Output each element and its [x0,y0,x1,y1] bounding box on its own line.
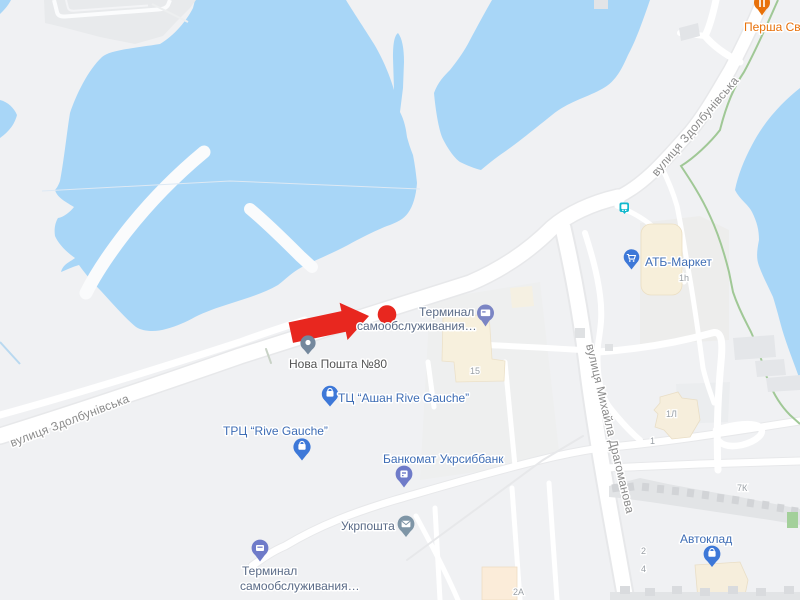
svg-text:самообслуживания…: самообслуживания… [357,319,477,333]
svg-text:1Л: 1Л [666,409,677,419]
svg-text:1h: 1h [679,273,689,283]
svg-text:1: 1 [650,436,655,446]
svg-text:ТЦ “Ашан Rive Gauche”: ТЦ “Ашан Rive Gauche” [338,391,469,405]
svg-text:2А: 2А [513,587,524,597]
svg-text:Терминал: Терминал [419,305,474,319]
svg-text:Нова Пошта №80: Нова Пошта №80 [289,357,387,371]
svg-text:ТРЦ “Rive Gauche”: ТРЦ “Rive Gauche” [223,424,328,438]
svg-text:АТБ-Маркет: АТБ-Маркет [645,255,712,269]
svg-text:2: 2 [641,546,646,556]
svg-text:Укрпошта: Укрпошта [341,519,395,533]
svg-text:Автоклад: Автоклад [680,532,732,546]
svg-text:Перша Сві: Перша Сві [744,20,800,34]
svg-text:4: 4 [641,564,646,574]
svg-text:Терминал: Терминал [242,564,297,578]
svg-text:15: 15 [470,366,480,376]
svg-text:Банкомат Укрсиббанк: Банкомат Укрсиббанк [383,452,504,466]
svg-text:7К: 7К [737,483,748,493]
svg-text:самообслуживания…: самообслуживания… [240,579,360,593]
